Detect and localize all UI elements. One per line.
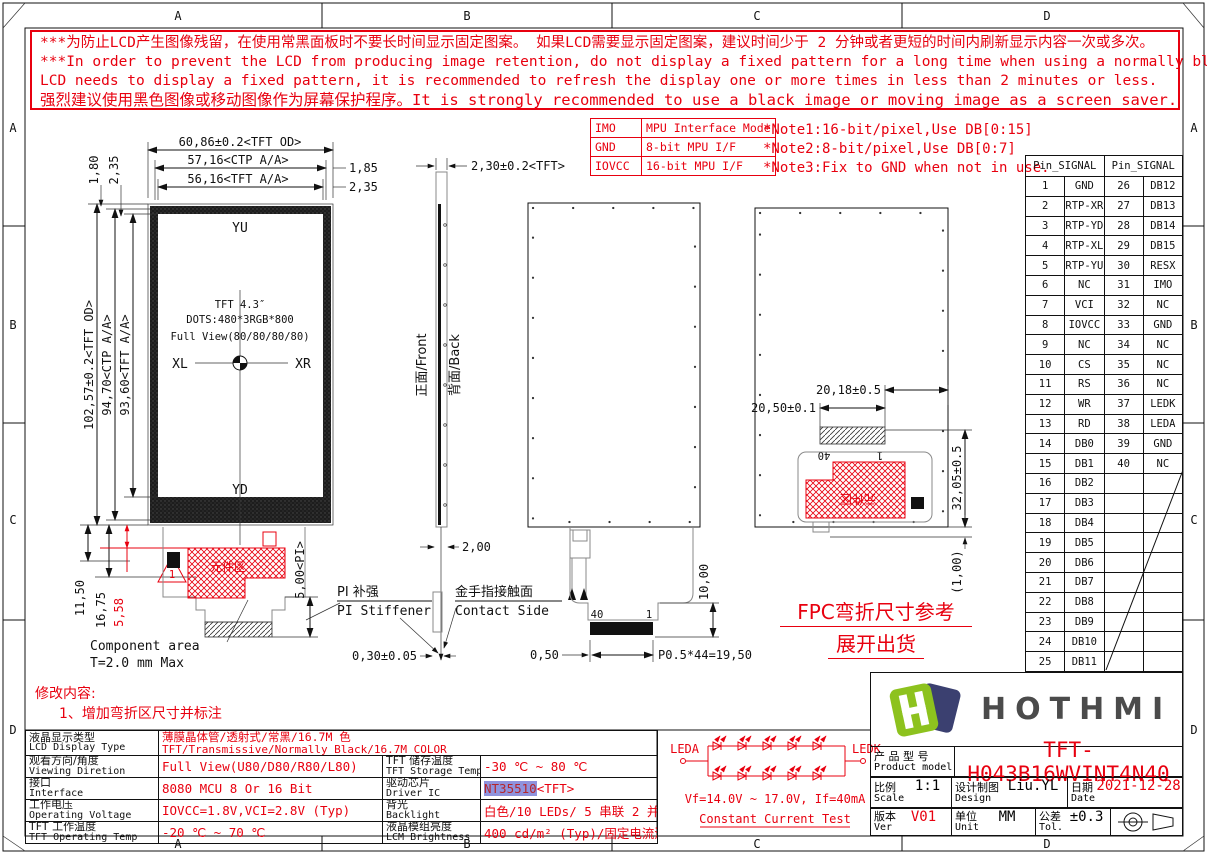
- title-row-2: 比例Scale 1:1 设计制图Design Liu.YL 日期Date 202…: [870, 777, 1183, 808]
- hothmi-logo-icon: [889, 678, 967, 742]
- title-row-3: 版本Ver V01 单位Unit MM 公差Tol. ±0.3: [870, 808, 1183, 836]
- side-back-label: 背面/Back: [448, 334, 463, 396]
- revision-notes: 修改内容: 1、增加弯折区尺寸并标注: [35, 684, 222, 724]
- led-circuit: LEDA LEDK Vf=14.0V ~ 17.0V, If=40mA Cons…: [670, 736, 882, 827]
- frame-col-d-top: D: [1043, 9, 1050, 23]
- pi-stiffener-en: PI Stiffener: [337, 604, 431, 619]
- label-xr: XR: [295, 357, 311, 372]
- frame-col-b-top: B: [463, 9, 470, 23]
- label-xl: XL: [172, 357, 188, 372]
- revision-item: 1、增加弯折区尺寸并标注: [35, 704, 222, 724]
- spec-value: -30 ℃ ~ 80 ℃: [481, 756, 658, 778]
- spec-value: TFT/Transmissive/Normally Black/16.7M CO…: [162, 744, 654, 755]
- hothmi-logo-text: HOTHMI: [981, 692, 1172, 727]
- pin-row: 10CS35NC: [1026, 355, 1183, 375]
- dim-pi-5: 5,00<PI>: [293, 541, 307, 599]
- frame-col-d-bottom: D: [1043, 837, 1050, 851]
- contact-side-cn: 金手指接触面: [455, 584, 533, 600]
- dim-height-od: 102,57±0.2<TFT OD>: [82, 300, 96, 430]
- revision-title: 修改内容:: [35, 684, 222, 704]
- dim-1-00: (1,00): [950, 550, 964, 593]
- frame-col-c-top: C: [753, 9, 760, 23]
- driver-ic-highlight: NT35510: [484, 781, 537, 796]
- pin-row: 14DB039GND: [1026, 434, 1183, 454]
- pin-row: 5RTP-YU30RESX: [1026, 256, 1183, 276]
- tolerance-cell: 公差Tol. ±0.3: [1036, 809, 1111, 835]
- fpc-pin-40: 40: [591, 609, 604, 621]
- label-yd: YD: [232, 483, 248, 498]
- component-area-cn: 元件区: [210, 560, 246, 574]
- interface-mode-table: IMOMPU Interface Mode GND8-bit MPU I/F I…: [590, 118, 776, 176]
- spec-row: 接口Interface 8080 MCU 8 Or 16 Bit 驱动芯片Dri…: [26, 778, 658, 800]
- fpc-pin-1: 1: [646, 609, 652, 621]
- frame-row-c-left: C: [9, 513, 16, 527]
- pin-row: 24DB10: [1026, 632, 1183, 652]
- unit-cell: 单位Unit MM: [952, 809, 1036, 835]
- spec-table: 液晶显示类型LCD Display Type 薄膜晶体管/透射式/常黑/16.7…: [25, 730, 658, 844]
- frame-col-c-bottom: C: [753, 837, 760, 851]
- component-area-thickness: T=2.0 mm Max: [90, 656, 184, 671]
- frame-row-c-right: C: [1190, 513, 1197, 527]
- iface-row: GND8-bit MPU I/F: [591, 138, 776, 157]
- dim-0-50: 0,50: [530, 648, 559, 662]
- pin-row: 17DB3: [1026, 493, 1183, 513]
- pin-row: 4RTP-XL29DB15: [1026, 236, 1183, 256]
- dim-10-00: 10,00: [697, 564, 711, 600]
- frame-row-d-left: D: [9, 723, 16, 737]
- contact-side-en: Contact Side: [455, 604, 549, 619]
- dim-0-30: 0,30±0.05: [352, 649, 417, 663]
- pin-row: 13RD38LEDA: [1026, 414, 1183, 434]
- fold-pin-1: 1: [877, 449, 883, 461]
- frame-row-d-right: D: [1190, 723, 1197, 737]
- panel-fullview: Full View(80/80/80/80): [170, 331, 309, 343]
- pin-row: 22DB8: [1026, 592, 1183, 612]
- frame-row-a-left: A: [9, 121, 17, 135]
- dim-width-aa: 56,16<TFT A/A>: [187, 172, 288, 186]
- note-2: *Note2:8-bit/pixel,Use DB[0:7]: [763, 140, 1050, 159]
- dim-pitch: P0.5*44=19,50: [658, 648, 752, 662]
- warning-line-1: ***为防止LCD产生图像残留，在使用常黑面板时不要长时间显示固定图案。 如果L…: [40, 34, 1170, 53]
- product-model-row: 产 品 型 号Product model TFT-H043B16WVINT4N4…: [870, 746, 1183, 777]
- warning-line-4: 强烈建议使用黑色图像或移动图像作为屏幕保护程序。It is strongly r…: [40, 91, 1170, 110]
- pin-row: 11RS36NC: [1026, 374, 1183, 394]
- tolerance-value: ±0.3: [1063, 809, 1110, 835]
- spec-value: 400 cd/m² (Typ)/固定电流测试: [481, 822, 658, 844]
- component-area-cn-folded: 元件区: [840, 492, 876, 506]
- frame-row-a-right: A: [1190, 121, 1198, 135]
- dim-2-35-right: 2,35: [349, 180, 378, 194]
- spec-value: IOVCC=1.8V,VCI=2.8V (Typ): [159, 800, 383, 822]
- design-cell: 设计制图Design Liu.YL: [952, 778, 1068, 807]
- pin-row: 19DB5: [1026, 533, 1183, 553]
- folded-view: 40 1 元件区 20,18±0.5 20,50±0.1 32,05±0.5 (…: [751, 208, 972, 594]
- warning-line-3: LCD needs to display a fixed pattern, it…: [40, 72, 1170, 91]
- version-value: V01: [896, 809, 951, 835]
- frame-col-a-top: A: [174, 9, 182, 23]
- led-test-note: Constant Current Test: [699, 812, 851, 826]
- dim-20-50: 20,50±0.1: [751, 401, 816, 415]
- led-vf-spec: Vf=14.0V ~ 17.0V, If=40mA: [685, 792, 866, 806]
- interface-notes: *Note1:16-bit/pixel,Use DB[0:15] *Note2:…: [763, 121, 1050, 178]
- fpc-fold-note-2: 展开出货: [828, 628, 924, 659]
- pin-signal-table: Pin_SIGNALPin_SIGNAL 1GND26DB12 2RTP-XR2…: [1025, 155, 1183, 672]
- pin-row: 7VCI32NC: [1026, 295, 1183, 315]
- pin-row: 8IOVCC33GND: [1026, 315, 1183, 335]
- back-view: 40 1 0,50 P0.5*44=19,50 10,00: [528, 203, 752, 662]
- spec-value: 白色/10 LEDs/ 5 串联 2 并联: [481, 800, 658, 822]
- dim-16-75: 16,75: [94, 592, 108, 628]
- design-value: Liu.YL: [999, 778, 1067, 807]
- dim-11-50: 11,50: [73, 580, 87, 616]
- warning-line-2: ***In order to prevent the LCD from prod…: [40, 53, 1170, 72]
- frame-row-b-left: B: [9, 318, 16, 332]
- spec-row: 观看方向/角度Viewing Diretion Full View(U80/D8…: [26, 756, 658, 778]
- date-value: 2021-12-28: [1095, 778, 1182, 807]
- led-anode-label: LEDA: [670, 742, 700, 756]
- pin-row: 9NC34NC: [1026, 335, 1183, 355]
- version-cell: 版本Ver V01: [871, 809, 952, 835]
- label-yu: YU: [232, 221, 248, 236]
- spec-value: Full View(U80/D80/R80/L80): [159, 756, 383, 778]
- iface-row: IMOMPU Interface Mode: [591, 119, 776, 138]
- pin-row: 2RTP-XR27DB13: [1026, 196, 1183, 216]
- spec-row: 工作电压Operating Voltage IOVCC=1.8V,VCI=2.8…: [26, 800, 658, 822]
- pin-row: 16DB2: [1026, 473, 1183, 493]
- pin-row: 6NC31IMO: [1026, 275, 1183, 295]
- dim-5-58: 5,58: [112, 598, 126, 627]
- pi-stiffener-cn: PI 补强: [337, 585, 379, 600]
- annotations: PI 补强 PI Stiffener 金手指接触面 Contact Side 0…: [306, 540, 562, 663]
- dim-side-thickness: 2,30±0.2<TFT>: [471, 159, 565, 173]
- scale-cell: 比例Scale 1:1: [871, 778, 952, 807]
- dim-1-85: 1,85: [349, 161, 378, 175]
- driver-ic-suffix: <TFT>: [537, 781, 575, 796]
- pin-row: 18DB4: [1026, 513, 1183, 533]
- date-cell: 日期Date 2021-12-28: [1068, 778, 1182, 807]
- spec-value: -20 ℃ ~ 70 ℃: [159, 822, 383, 844]
- pin-header-left: Pin_SIGNAL: [1026, 156, 1105, 177]
- product-model-label: 产 品 型 号Product model: [871, 747, 955, 776]
- dim-height-aa: 93,60<TFT A/A>: [118, 314, 132, 415]
- retention-warning: ***为防止LCD产生图像残留，在使用常黑面板时不要长时间显示固定图案。 如果L…: [30, 30, 1180, 110]
- dim-1-80: 1,80: [87, 156, 101, 185]
- panel-size: TFT 4.3″: [215, 299, 266, 311]
- spec-label-en: LCD Display Type: [29, 743, 155, 754]
- spec-row: 液晶显示类型LCD Display Type 薄膜晶体管/透射式/常黑/16.7…: [26, 731, 658, 756]
- scale-value: 1:1: [904, 778, 951, 807]
- pin-row: 12WR37LEDK: [1026, 394, 1183, 414]
- pin-row: 21DB7: [1026, 572, 1183, 592]
- pin-row: 23DB9: [1026, 612, 1183, 632]
- dim-width-ctp: 57,16<CTP A/A>: [187, 153, 288, 167]
- fpc-fold-note-1: FPC弯折尺寸参考: [780, 596, 972, 627]
- logo-cell: HOTHMI: [870, 672, 1183, 747]
- frame-row-b-right: B: [1190, 318, 1197, 332]
- side-front-label: 正面/Front: [415, 333, 430, 396]
- pin-row: 1GND26DB12: [1026, 177, 1183, 197]
- pin-row: 3RTP-YD28DB14: [1026, 216, 1183, 236]
- dim-32-05: 32,05±0.5: [950, 445, 964, 510]
- dim-width-od: 60,86±0.2<TFT OD>: [179, 135, 302, 149]
- panel-dots: DOTS:480*3RGB*800: [186, 314, 293, 326]
- fold-pin-40: 40: [818, 449, 831, 461]
- spec-value: 8080 MCU 8 Or 16 Bit: [159, 778, 383, 800]
- dim-20-18: 20,18±0.5: [816, 383, 881, 397]
- pin-row: 20DB6: [1026, 553, 1183, 573]
- iface-row: IOVCC16-bit MPU I/F: [591, 157, 776, 176]
- unit-value: MM: [979, 809, 1035, 835]
- dim-height-ctp: 94,70<CTP A/A>: [100, 314, 114, 415]
- note-1: *Note1:16-bit/pixel,Use DB[0:15]: [763, 121, 1050, 140]
- dim-2-00: 2,00: [462, 540, 491, 554]
- dim-2-35-left: 2,35: [107, 156, 121, 185]
- revision-flag-1: 1: [169, 569, 175, 581]
- datasheet-page: A B C D A B C D A B C D A B C D YU YD XL…: [0, 0, 1207, 854]
- pin-row: 15DB140NC: [1026, 454, 1183, 474]
- component-area-en: Component area: [90, 639, 200, 654]
- pin-row: 25DB11: [1026, 652, 1183, 672]
- note-3: *Note3:Fix to GND when not in use.: [763, 159, 1050, 178]
- pin-header-right: Pin_SIGNAL: [1104, 156, 1183, 177]
- spec-row: TFT 工作温度TFT Operating Temp -20 ℃ ~ 70 ℃ …: [26, 822, 658, 844]
